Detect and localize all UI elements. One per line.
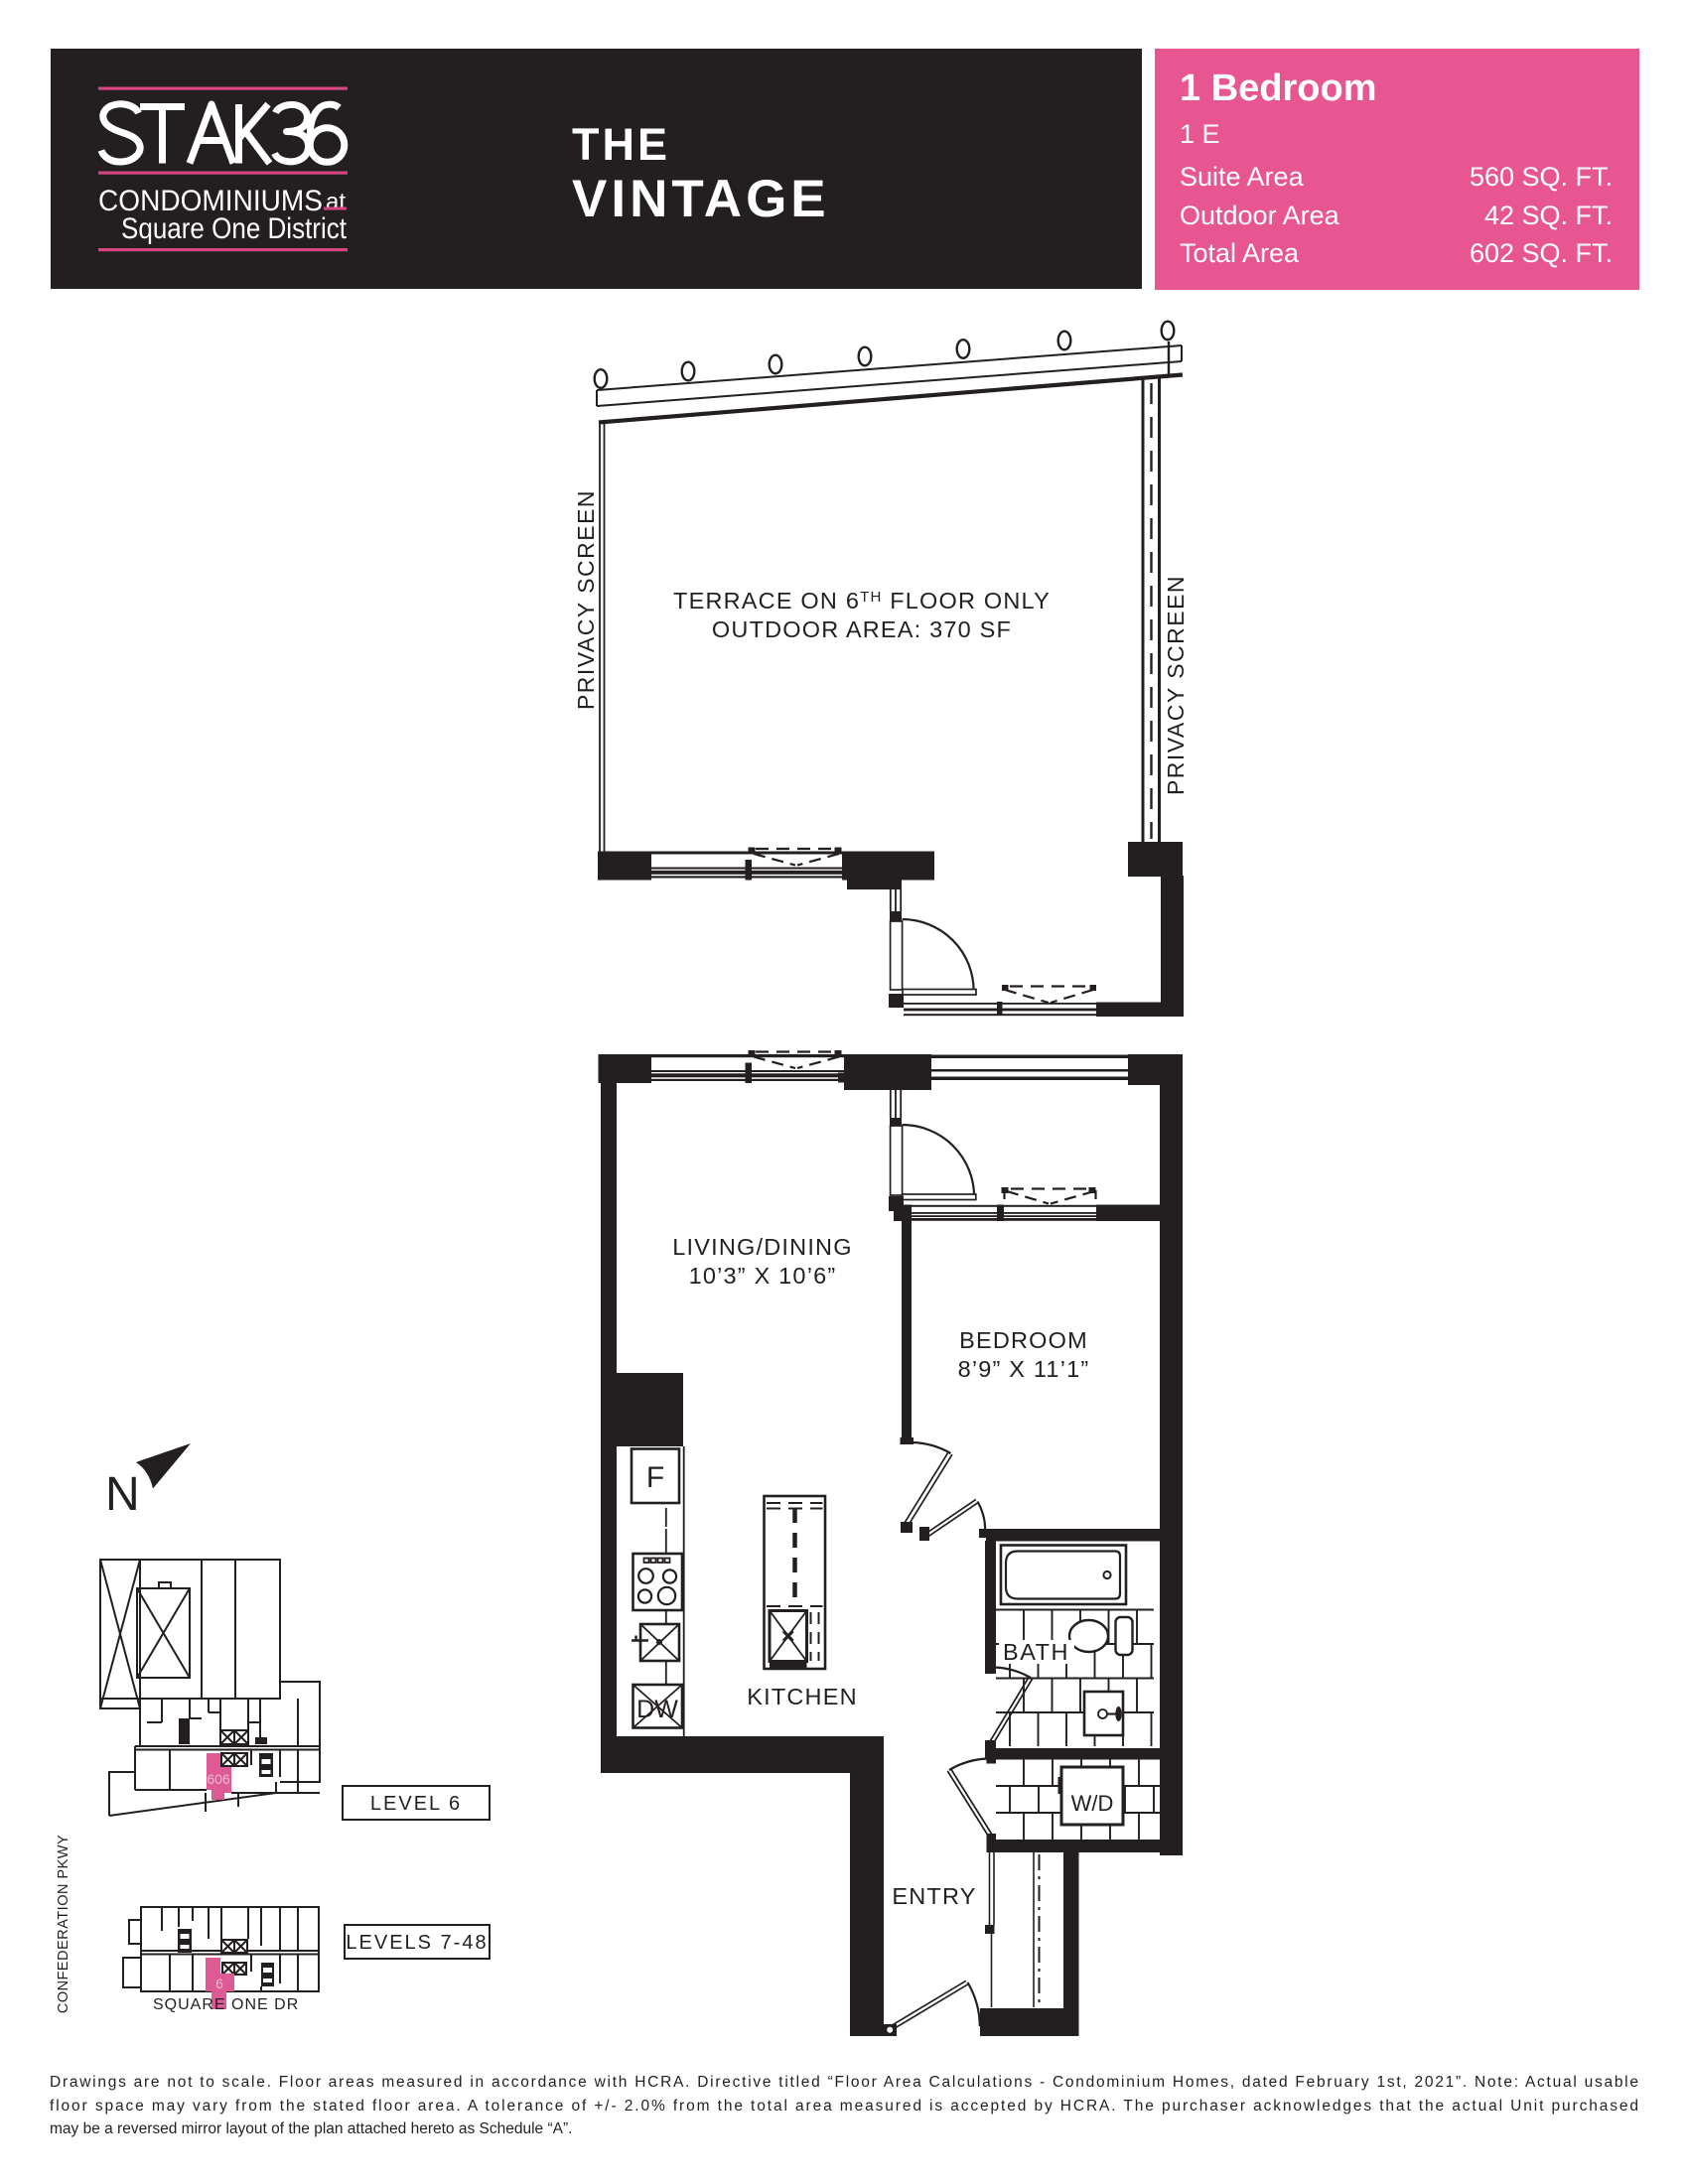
svg-text:VINTAGE: VINTAGE <box>572 170 830 228</box>
svg-text:1 Bedroom: 1 Bedroom <box>1180 68 1376 109</box>
svg-text:OUTDOOR AREA: 370 SF: OUTDOOR AREA: 370 SF <box>712 616 1012 642</box>
svg-text:560 SQ. FT.: 560 SQ. FT. <box>1470 162 1613 192</box>
svg-text:N: N <box>105 1468 140 1521</box>
svg-text:PRIVACY SCREEN: PRIVACY SCREEN <box>573 489 599 710</box>
svg-text:KITCHEN: KITCHEN <box>747 1684 858 1709</box>
svg-text:Suite Area: Suite Area <box>1180 162 1305 192</box>
svg-text:LIVING/DINING: LIVING/DINING <box>672 1234 852 1260</box>
svg-text:DW: DW <box>636 1696 678 1723</box>
svg-text:SQUARE ONE DR: SQUARE ONE DR <box>153 1996 299 2013</box>
svg-text:1 E: 1 E <box>1180 119 1220 149</box>
svg-text:42 SQ. FT.: 42 SQ. FT. <box>1484 201 1613 230</box>
svg-text:BATH: BATH <box>1003 1639 1069 1665</box>
svg-text:BEDROOM: BEDROOM <box>959 1327 1088 1353</box>
svg-text:Total Area: Total Area <box>1180 238 1300 268</box>
svg-text:Outdoor Area: Outdoor Area <box>1180 201 1340 230</box>
svg-text:TERRACE ON 6TH FLOOR ONLY: TERRACE ON 6TH FLOOR ONLY <box>673 588 1051 614</box>
svg-text:Drawings are not to scale. Flo: Drawings are not to scale. Floor areas m… <box>50 2074 1638 2091</box>
svg-text:606: 606 <box>207 1771 230 1787</box>
svg-text:6: 6 <box>215 1976 223 1991</box>
svg-text:ENTRY: ENTRY <box>892 1883 976 1909</box>
svg-text:floor space may vary from the: floor space may vary from the stated flo… <box>50 2098 1638 2115</box>
svg-text:CONFEDERATION PKWY: CONFEDERATION PKWY <box>56 1835 71 2013</box>
svg-text:10’3” X 10’6”: 10’3” X 10’6” <box>689 1263 837 1289</box>
svg-text:W/D: W/D <box>1071 1791 1114 1816</box>
svg-text:602 SQ. FT.: 602 SQ. FT. <box>1470 238 1613 268</box>
svg-text:8’9” X 11’1”: 8’9” X 11’1” <box>958 1356 1090 1382</box>
svg-text:LEVEL 6: LEVEL 6 <box>370 1793 462 1815</box>
svg-text:LEVELS 7-48: LEVELS 7-48 <box>346 1932 488 1954</box>
svg-text:may be a reversed mirror layou: may be a reversed mirror layout of the p… <box>50 2120 572 2137</box>
svg-text:THE: THE <box>572 119 670 170</box>
svg-text:PRIVACY SCREEN: PRIVACY SCREEN <box>1163 575 1189 795</box>
svg-text:at: at <box>326 189 346 215</box>
svg-text:F: F <box>646 1461 664 1494</box>
svg-text:Square One District: Square One District <box>121 212 348 245</box>
